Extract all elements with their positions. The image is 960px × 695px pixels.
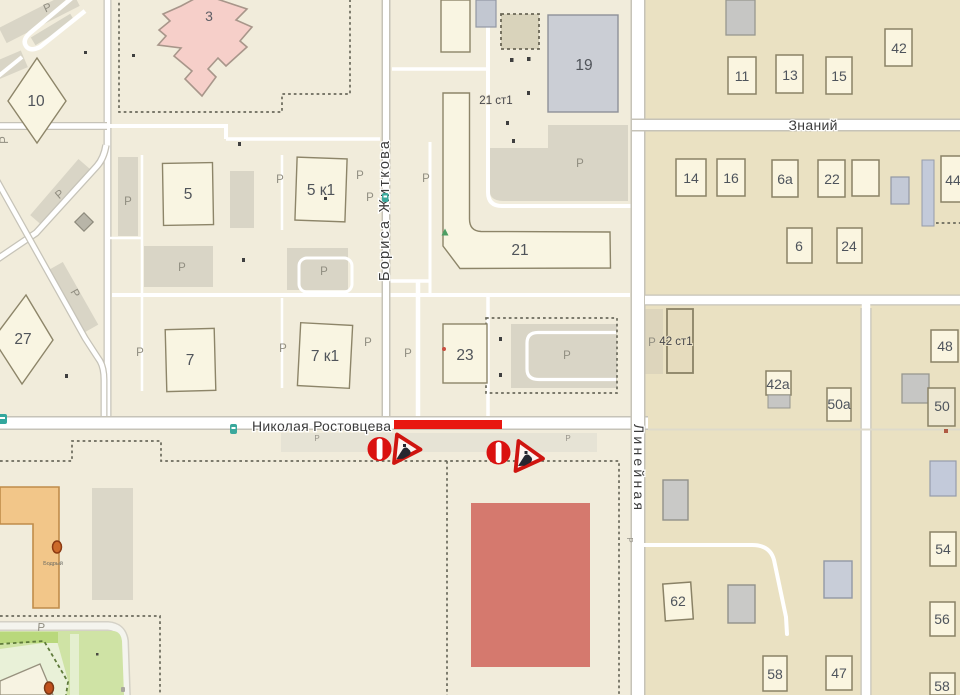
svg-text:16: 16 bbox=[723, 170, 739, 186]
svg-text:Р: Р bbox=[37, 622, 46, 635]
svg-text:54: 54 bbox=[935, 541, 951, 557]
svg-text:Р: Р bbox=[625, 537, 634, 542]
svg-text:Р: Р bbox=[404, 348, 412, 360]
svg-text:47: 47 bbox=[831, 665, 847, 681]
svg-text:58: 58 bbox=[767, 666, 783, 682]
svg-text:6: 6 bbox=[795, 238, 803, 254]
svg-text:Р: Р bbox=[279, 343, 287, 355]
svg-text:7 к1: 7 к1 bbox=[311, 348, 339, 365]
svg-text:44: 44 bbox=[945, 172, 960, 188]
svg-text:Бодрый: Бодрый bbox=[43, 560, 63, 567]
svg-text:14: 14 bbox=[683, 170, 699, 186]
svg-text:11: 11 bbox=[735, 68, 750, 84]
svg-text:3: 3 bbox=[205, 8, 213, 24]
svg-text:42: 42 bbox=[891, 40, 907, 56]
svg-text:15: 15 bbox=[831, 68, 847, 84]
svg-text:13: 13 bbox=[782, 67, 798, 83]
svg-text:10: 10 bbox=[27, 93, 45, 110]
svg-text:Знаний: Знаний bbox=[789, 117, 838, 133]
svg-text:Р: Р bbox=[648, 337, 656, 349]
svg-text:Р: Р bbox=[178, 262, 186, 274]
svg-text:7: 7 bbox=[186, 352, 195, 369]
svg-text:50а: 50а bbox=[827, 396, 851, 412]
svg-text:Р: Р bbox=[0, 136, 11, 144]
svg-text:5: 5 bbox=[184, 186, 193, 203]
svg-text:21: 21 bbox=[511, 242, 528, 259]
svg-text:21 ст1: 21 ст1 bbox=[479, 95, 512, 107]
svg-text:Р: Р bbox=[422, 173, 430, 185]
svg-text:24: 24 bbox=[841, 238, 857, 254]
svg-text:58: 58 bbox=[934, 678, 950, 694]
svg-text:27: 27 bbox=[14, 331, 31, 348]
svg-text:42 ст1: 42 ст1 bbox=[659, 336, 692, 348]
svg-text:19: 19 bbox=[575, 57, 592, 74]
svg-text:Р: Р bbox=[366, 192, 374, 204]
svg-text:5 к1: 5 к1 bbox=[307, 182, 335, 199]
svg-text:23: 23 bbox=[456, 347, 473, 364]
svg-text:Николая Ростовцева: Николая Ростовцева bbox=[252, 418, 391, 434]
svg-text:Р: Р bbox=[565, 434, 570, 443]
svg-text:Р: Р bbox=[276, 174, 284, 186]
svg-text:42а: 42а bbox=[766, 376, 790, 392]
svg-text:Р: Р bbox=[136, 347, 144, 359]
svg-text:50: 50 bbox=[934, 398, 950, 414]
svg-text:Р: Р bbox=[124, 196, 132, 208]
svg-text:Р: Р bbox=[320, 266, 328, 278]
svg-text:48: 48 bbox=[937, 338, 953, 354]
svg-text:22: 22 bbox=[824, 171, 840, 187]
svg-text:Р: Р bbox=[563, 350, 571, 362]
svg-text:Р: Р bbox=[314, 434, 319, 443]
svg-text:56: 56 bbox=[934, 611, 950, 627]
svg-text:Р: Р bbox=[576, 158, 584, 170]
svg-text:Р: Р bbox=[356, 170, 364, 182]
svg-text:6а: 6а bbox=[777, 171, 793, 187]
svg-text:Р: Р bbox=[364, 337, 372, 349]
svg-text:Бориса Житкова: Бориса Житкова bbox=[377, 140, 393, 281]
svg-text:62: 62 bbox=[670, 593, 686, 609]
